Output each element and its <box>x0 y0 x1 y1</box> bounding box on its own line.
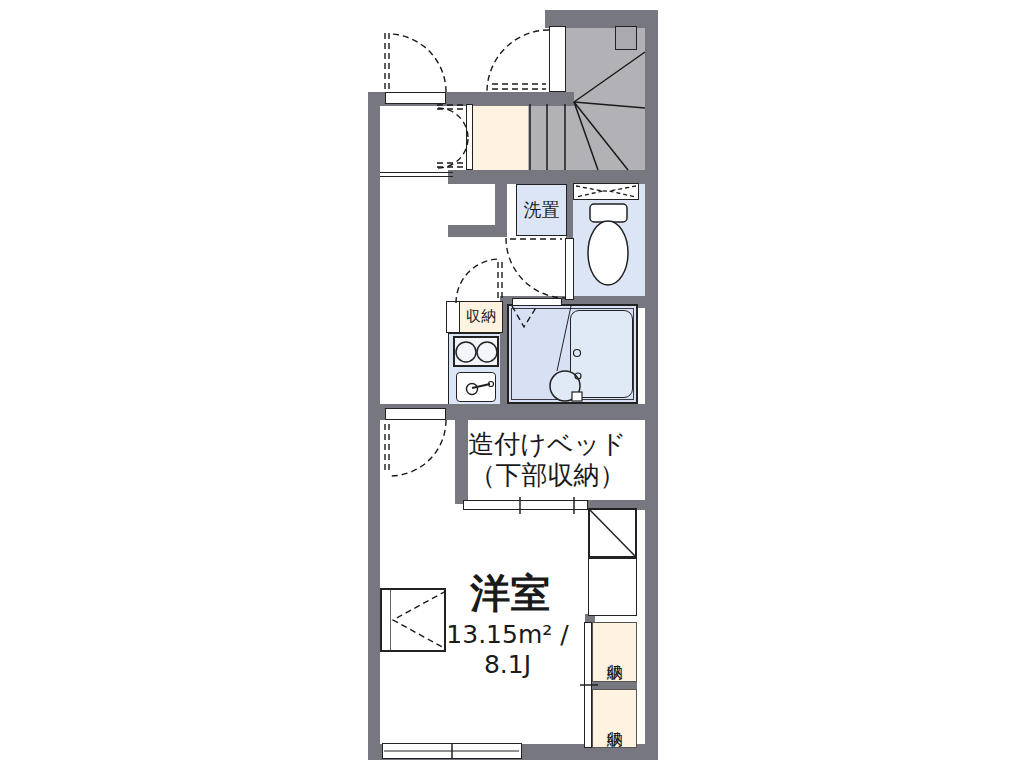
entrance-double-door-arc-bottom <box>438 138 468 168</box>
staircase-floor-lower <box>528 100 563 170</box>
room-area-label: 13.15m² / <box>445 621 570 649</box>
hall-step-edge <box>380 172 453 177</box>
wall-toilet-left <box>566 183 573 239</box>
floor-plan: 洗置 収納 収納 収納 造付けベッド （下部収納） 洋室 13.15m² / <box>0 0 1017 772</box>
hall-closet-door-open-leaf <box>498 262 502 299</box>
wall-washroom-stub-h <box>448 225 507 237</box>
porch-door-open-leaf <box>385 33 389 89</box>
washroom-door-leaf <box>565 238 574 300</box>
washer-label: 洗置 <box>524 200 560 221</box>
counter-space <box>588 558 637 616</box>
entrance-floor <box>470 104 528 170</box>
main-room-door-open-leaf <box>385 424 389 474</box>
front-door-arc <box>487 30 549 92</box>
bed-label-line2: （下部収納） <box>450 461 645 491</box>
closet-top-label: 収納 <box>605 651 623 653</box>
entrance-double-door-arc-top <box>438 108 468 138</box>
bed-label-text1: 造付けベッド <box>468 430 626 460</box>
closet-bottom-label: 収納 <box>605 718 623 720</box>
room-area-text: 13.15m² / <box>446 621 568 650</box>
main-room-door-leaf <box>385 408 446 420</box>
bed-sliding-door <box>463 500 588 510</box>
hall-closet-front <box>446 301 460 333</box>
washroom-door-arc <box>506 238 566 298</box>
toilet-window <box>573 183 639 200</box>
hall-closet: 収納 <box>459 301 503 333</box>
hall-closet-door-arc <box>456 259 500 303</box>
main-room-door-arc <box>390 420 446 476</box>
closet-top: 収納 <box>592 622 637 682</box>
entrance-double-door-frame <box>466 104 473 170</box>
closet-sliding-door <box>584 622 592 748</box>
hall-closet-label: 収納 <box>466 308 496 325</box>
front-door-leaf <box>549 26 566 92</box>
room-tatami-label: 8.1J <box>445 651 570 679</box>
bathtub-icon <box>570 310 633 398</box>
wall-closet-divider <box>585 682 637 689</box>
wall-right <box>645 10 658 760</box>
refrigerator-space <box>588 508 637 558</box>
room-name-text: 洋室 <box>471 570 551 616</box>
wall-left <box>368 92 380 760</box>
casement-window-box <box>380 588 446 652</box>
closet-bottom: 収納 <box>592 689 637 748</box>
wall-under-stair <box>448 170 645 184</box>
stove-icon <box>453 336 499 367</box>
sink-icon <box>456 372 496 402</box>
room-tatami-text: 8.1J <box>484 651 531 680</box>
porch-door-leaf <box>385 92 446 104</box>
stair-landing-box <box>615 26 637 50</box>
double-door-hatch-bottom <box>437 163 464 167</box>
porch-door-arc <box>390 34 446 92</box>
washing-machine-area: 洗置 <box>516 184 567 236</box>
bed-label-text2: （下部収納） <box>470 461 626 491</box>
bed-label-line1: 造付けベッド <box>450 430 645 460</box>
bath-threshold <box>512 298 562 306</box>
bottom-window <box>382 743 522 759</box>
front-door-open-leaf <box>492 84 546 89</box>
room-name-label: 洋室 <box>448 570 573 616</box>
casement-window-inner-line <box>390 590 391 650</box>
